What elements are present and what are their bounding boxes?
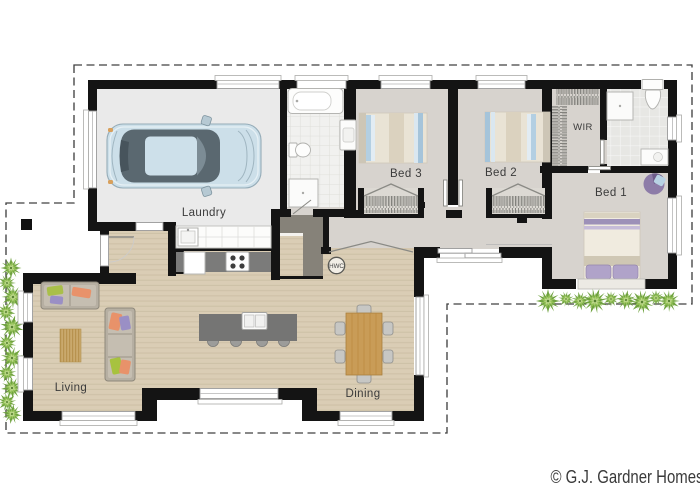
svg-text:© G.J. Gardner Homes: © G.J. Gardner Homes (551, 467, 700, 487)
svg-text:WIR: WIR (573, 122, 593, 133)
svg-text:Laundry: Laundry (182, 207, 226, 219)
svg-text:Bed 2: Bed 2 (485, 167, 517, 179)
svg-text:HWC: HWC (329, 263, 344, 270)
svg-text:Dining: Dining (345, 388, 380, 400)
svg-text:Bed 3: Bed 3 (390, 168, 422, 180)
svg-text:Bed 1: Bed 1 (595, 187, 627, 199)
svg-text:Living: Living (55, 382, 87, 394)
